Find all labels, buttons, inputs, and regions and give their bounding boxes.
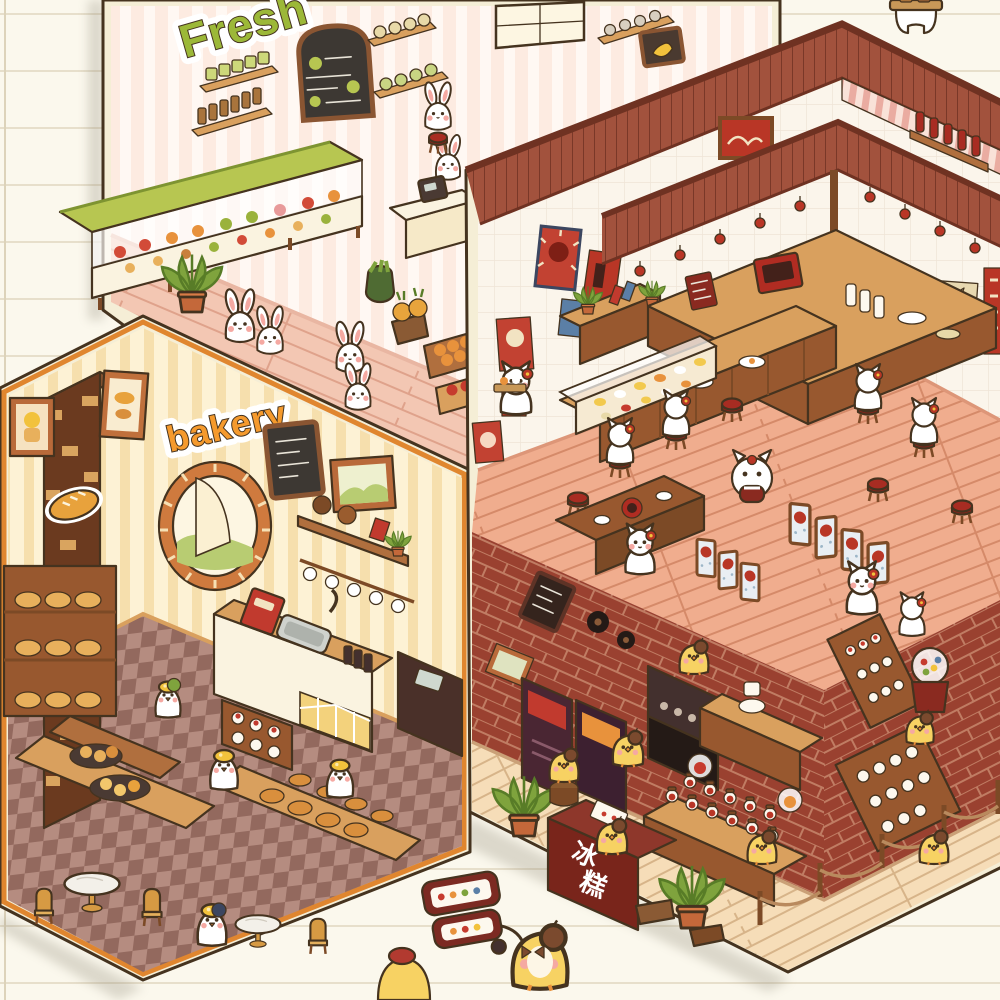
market-chalkboard [297, 24, 373, 121]
landscape-frame [330, 456, 395, 512]
left-bread-shelf [4, 566, 116, 716]
seated-duck-navy-beret [198, 903, 227, 946]
scene-svg: Fresh Fresh bakery ba [0, 0, 1000, 1000]
arched-window [159, 462, 271, 590]
scene-right-building: 冰 糕 [466, 24, 1000, 972]
bakery-chalkboard [264, 421, 323, 498]
duck-portrait-frame [10, 398, 54, 456]
bread-picture-frame [100, 371, 148, 440]
bar-tv [754, 252, 803, 293]
cash-register [418, 176, 448, 203]
illustration-canvas: Fresh Fresh bakery ba [0, 0, 1000, 1000]
banana-chalkboard [640, 27, 684, 66]
market-window [496, 2, 584, 48]
duck-green-beret [156, 679, 181, 718]
gumball-machine [912, 648, 948, 712]
